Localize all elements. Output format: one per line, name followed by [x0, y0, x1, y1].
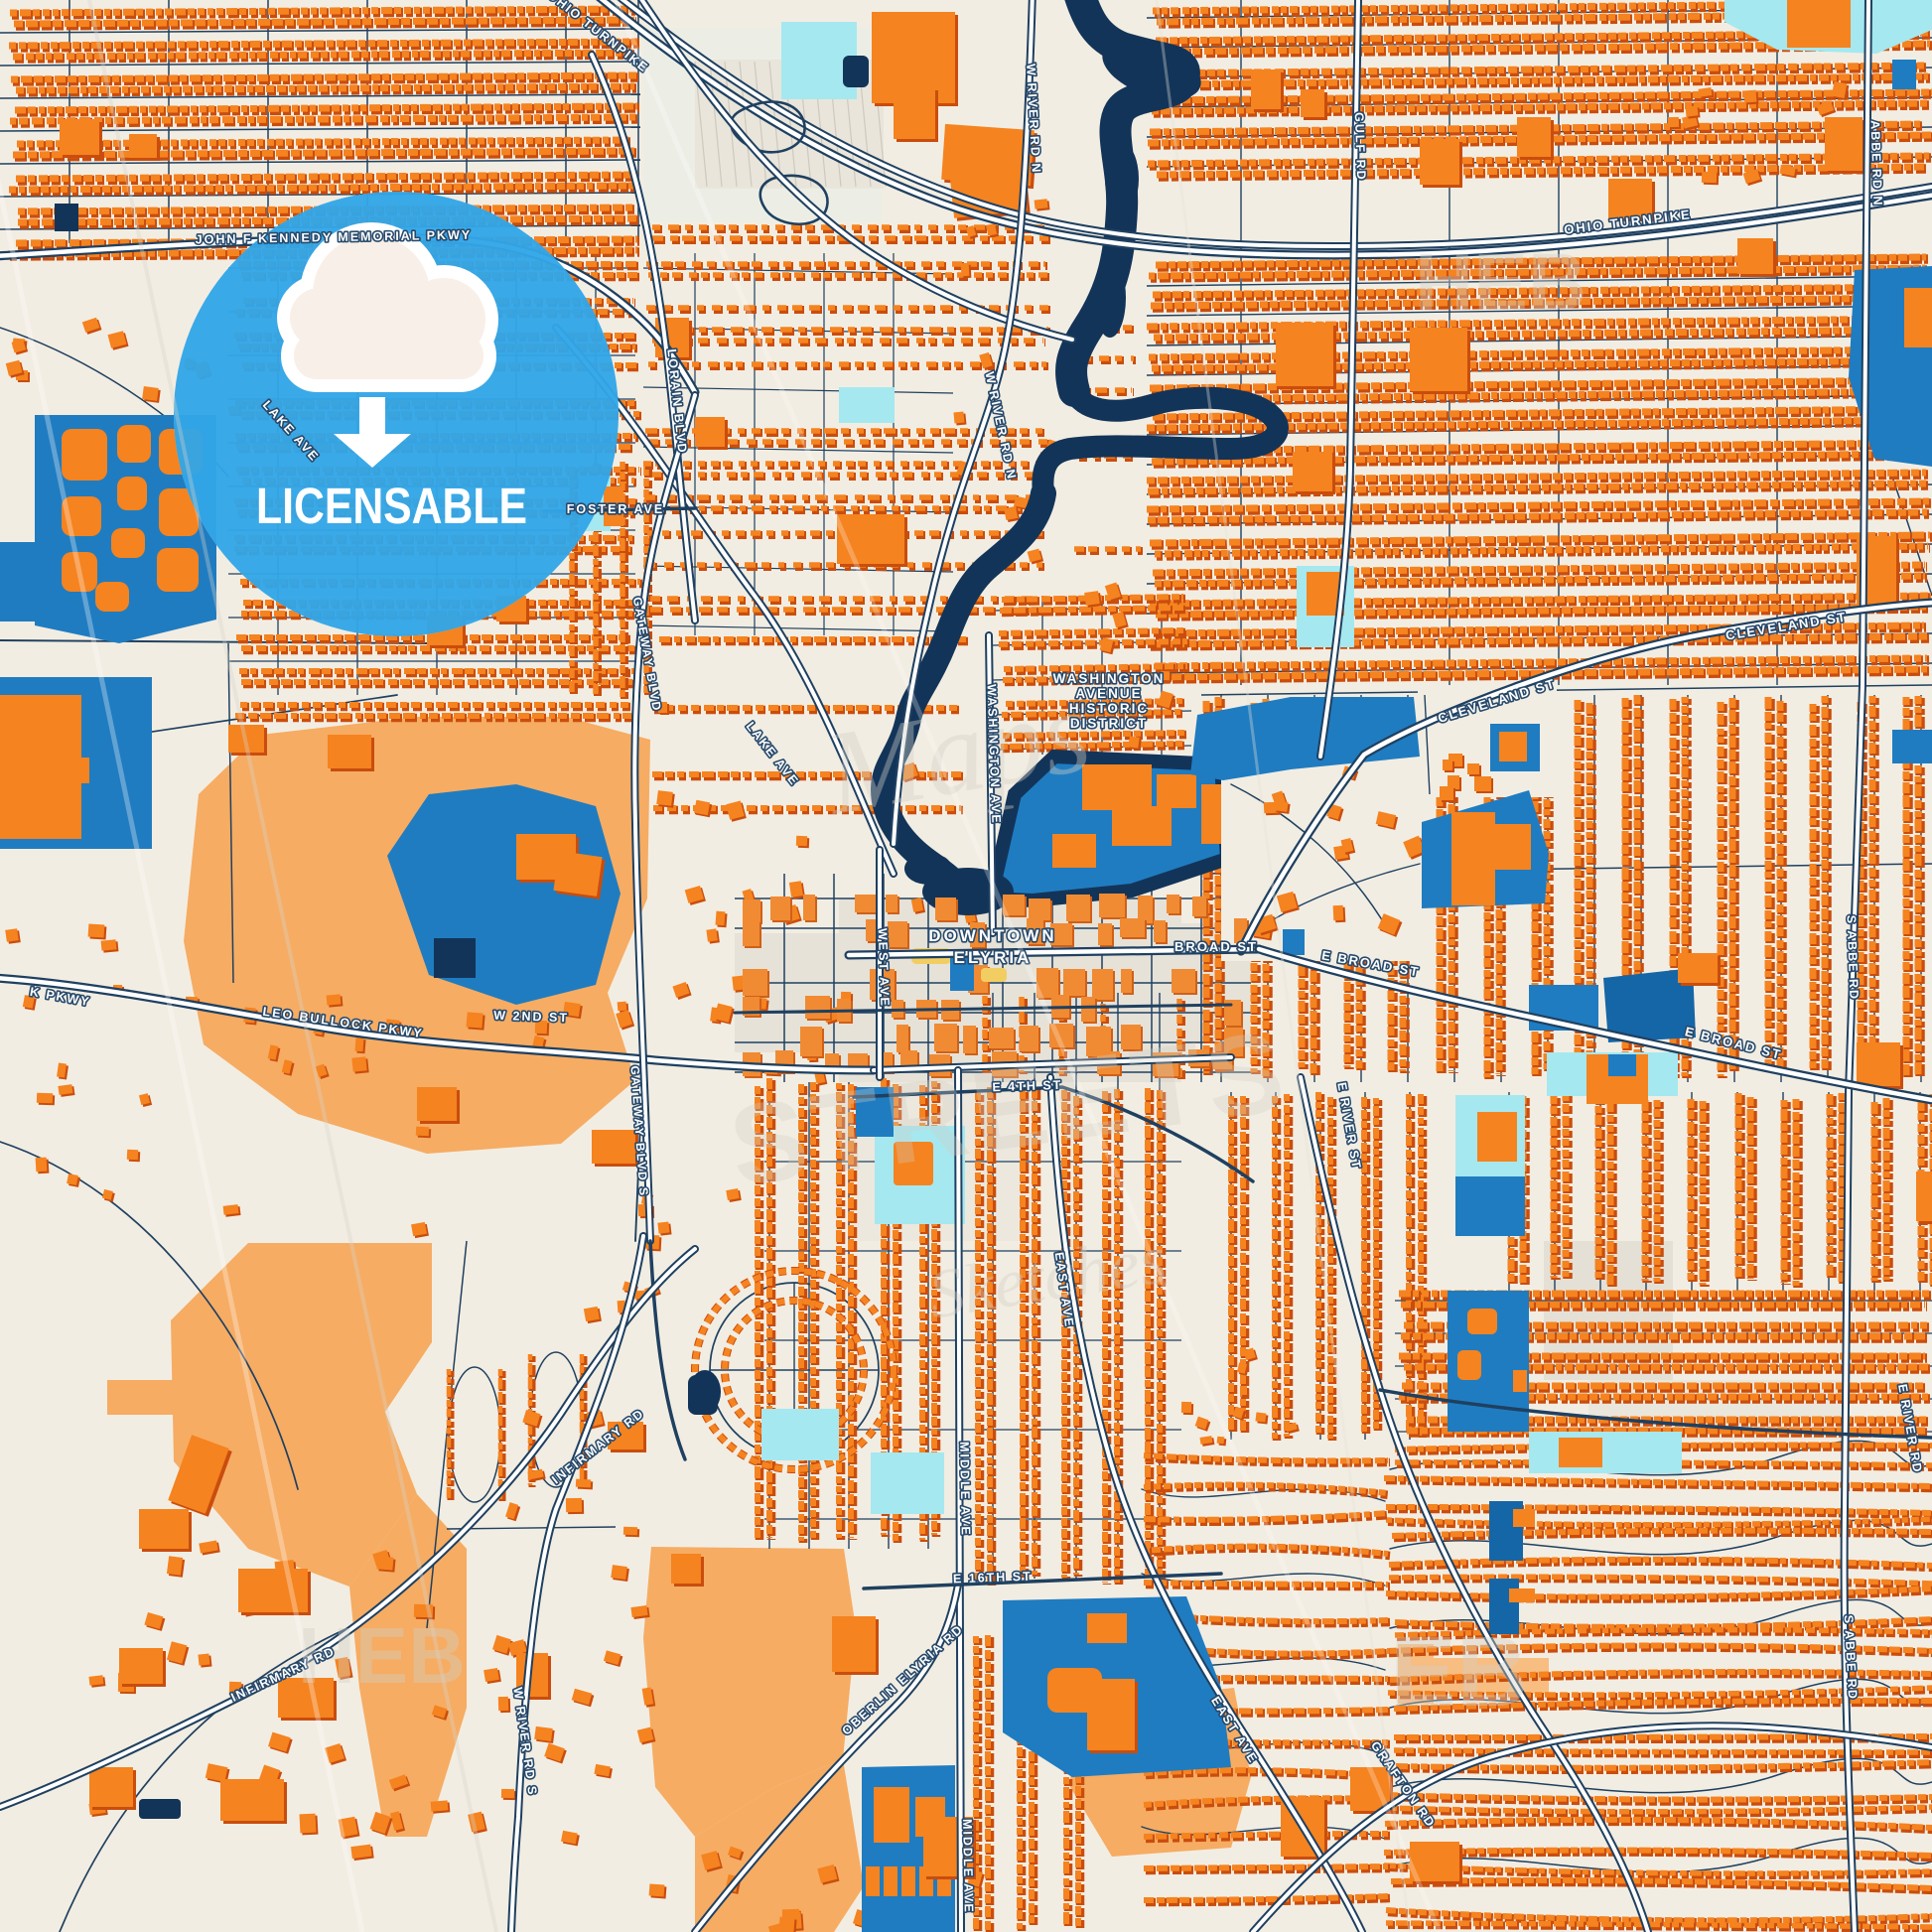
svg-text:AVENUE: AVENUE [1075, 686, 1142, 701]
svg-text:DOWNTOWN: DOWNTOWN [928, 926, 1056, 945]
svg-text:FOSTER AVE: FOSTER AVE [567, 502, 664, 516]
svg-text:DISTRICT: DISTRICT [1070, 716, 1148, 731]
svg-text:E 4TH ST: E 4TH ST [992, 1078, 1062, 1094]
svg-text:BROAD ST: BROAD ST [1174, 939, 1258, 954]
svg-text:W 2ND ST: W 2ND ST [493, 1009, 569, 1026]
svg-text:HEB: HEB [1415, 237, 1587, 328]
svg-text:WEST AVE: WEST AVE [876, 928, 893, 1008]
svg-text:HISTORIC: HISTORIC [1069, 701, 1149, 716]
svg-text:WASHINGTON: WASHINGTON [1053, 671, 1166, 686]
svg-text:MIDDLE AVE: MIDDLE AVE [960, 1819, 976, 1914]
svg-text:LICENSABLE: LICENSABLE [256, 478, 527, 534]
svg-text:EB: EB [1390, 1616, 1528, 1727]
svg-text:MIDDLE AVE: MIDDLE AVE [957, 1442, 973, 1537]
svg-text:GULF RD: GULF RD [1352, 112, 1368, 182]
svg-text:E 16TH ST: E 16TH ST [953, 1570, 1033, 1587]
